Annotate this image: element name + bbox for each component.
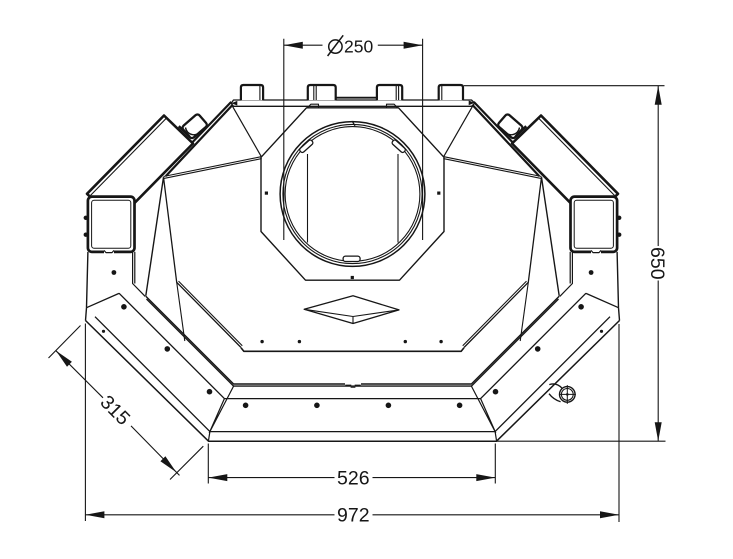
svg-text:972: 972 [337,505,370,527]
svg-text:650: 650 [646,247,668,280]
svg-text:250: 250 [344,36,373,56]
svg-text:526: 526 [337,467,370,489]
svg-text:315: 315 [96,391,135,430]
